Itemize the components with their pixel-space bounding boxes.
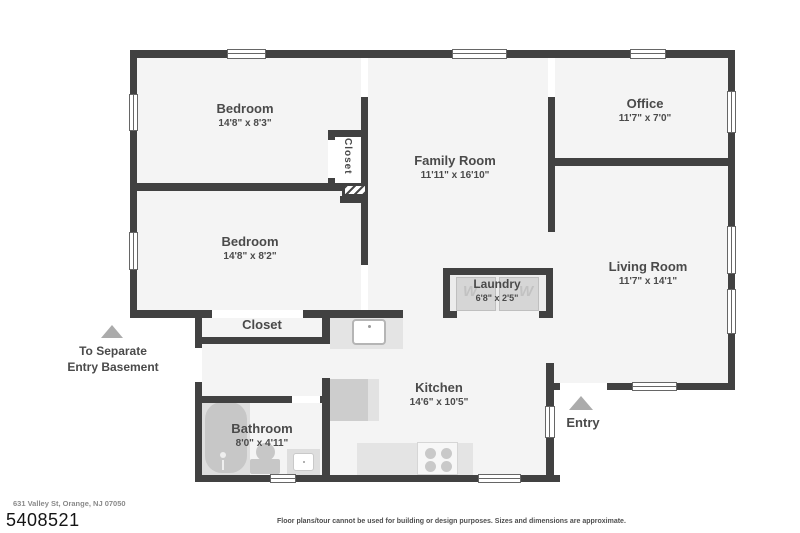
basement-annotation: To Separate Entry Basement [67,344,158,375]
chase-hatch-icon [342,183,368,197]
address-text: 631 Valley St, Orange, NJ 07050 [13,499,126,508]
room-name: Laundry [473,277,520,292]
refrigerator [330,379,368,421]
entry-arrow-icon [569,396,593,410]
room-name: Family Room [414,153,496,169]
room-label-bedroom2: Bedroom 14'8" x 8'2" [221,234,278,264]
window-bedroom1-top [227,49,266,59]
opening-bedroom2-door [361,265,368,310]
window-bedroom2-left [129,232,138,270]
bathroom-vanity [287,449,320,475]
window-office-right [727,91,736,133]
window-bedroom1-left [129,94,138,131]
opening-bathroom-door [292,396,320,403]
listing-id: 5408521 [6,510,80,531]
room-label-closet-bedroom: Closet [342,138,353,175]
window-family-top [452,49,507,59]
wall-chase-stub [340,196,368,203]
wall-bathroom-right [322,378,330,482]
room-dims: 8'0" x 4'11" [231,438,292,451]
room-name: Bedroom [221,234,278,250]
stove-burner-icon [441,448,452,459]
room-label-office: Office 11'7" x 7'0" [619,96,672,126]
window-bathroom-bottom [270,474,296,483]
basement-line2: Entry Basement [67,360,158,376]
wall-laundry-top [443,268,553,275]
dryer-letter: W [519,283,533,300]
bathroom-sink-drain-icon [303,461,305,463]
room-label-bedroom1: Bedroom 14'8" x 8'3" [216,101,273,131]
kitchen-sink [352,319,386,345]
window-office-top [630,49,666,59]
wall-closet2-bottom [195,337,330,344]
room-name: Closet [242,317,282,333]
wall-laundry-bottom-stub-left [443,311,457,318]
basement-arrow-icon [101,325,123,338]
room-label-kitchen: Kitchen 14'6" x 10'5" [410,380,469,410]
room-dims: 11'7" x 7'0" [619,113,672,126]
floor-plan: W W Bedroom 14'8" x 8'3" [0,0,800,533]
opening-office-left [548,58,555,97]
room-label-bathroom: Bathroom 8'0" x 4'11" [231,421,292,451]
bathroom-sink [293,453,314,471]
bathtub-overflow-icon [222,460,224,470]
stove-burner-icon [425,461,436,472]
window-living-right-1 [727,226,736,274]
room-label-family-room: Family Room 11'11" x 16'10" [414,153,496,183]
room-label-living-room: Living Room 11'7" x 14'1" [609,259,688,289]
opening-closet1-door [328,140,335,178]
basement-line1: To Separate [67,344,158,360]
wall-closet2-right [322,310,330,344]
stove-burner-icon [425,448,436,459]
window-living-right-2 [727,289,736,334]
opening-family-top-left [361,58,368,97]
room-dims: 6'8" x 2'5" [473,293,520,304]
room-dims: 14'6" x 10'5" [410,397,469,410]
wall-office-bottom [548,158,735,166]
window-kitchen-bottom [478,474,521,483]
room-dims: 14'8" x 8'2" [221,251,278,264]
kitchen-sink-faucet-icon [368,325,371,328]
window-living-bottom [632,382,677,391]
room-name: Kitchen [410,380,469,396]
stove-burner-icon [441,461,452,472]
room-label-closet-hall: Closet [242,317,282,333]
toilet-base-icon [250,459,280,474]
stove [417,442,458,475]
refrigerator-side-panel [368,379,379,421]
entry-annotation: Entry [566,415,599,432]
floor-living-lower [553,311,728,383]
room-dims: 14'8" x 8'3" [216,118,273,131]
room-dims: 11'7" x 14'1" [609,276,688,289]
bathtub-drain-icon [220,452,226,458]
room-label-laundry: Laundry 6'8" x 2'5" [473,277,520,304]
room-name: Living Room [609,259,688,275]
opening-entry-door [560,383,607,390]
disclaimer-text: Floor plans/tour cannot be used for buil… [277,518,626,525]
room-name: Bathroom [231,421,292,437]
room-name: Office [619,96,672,112]
wall-laundry-bottom-stub-right [539,311,553,318]
opening-basement-door [195,348,202,382]
room-name: Bedroom [216,101,273,117]
window-kitchen-right [545,406,555,438]
room-dims: 11'11" x 16'10" [414,170,496,183]
wall-bedrooms-divider [130,183,368,191]
